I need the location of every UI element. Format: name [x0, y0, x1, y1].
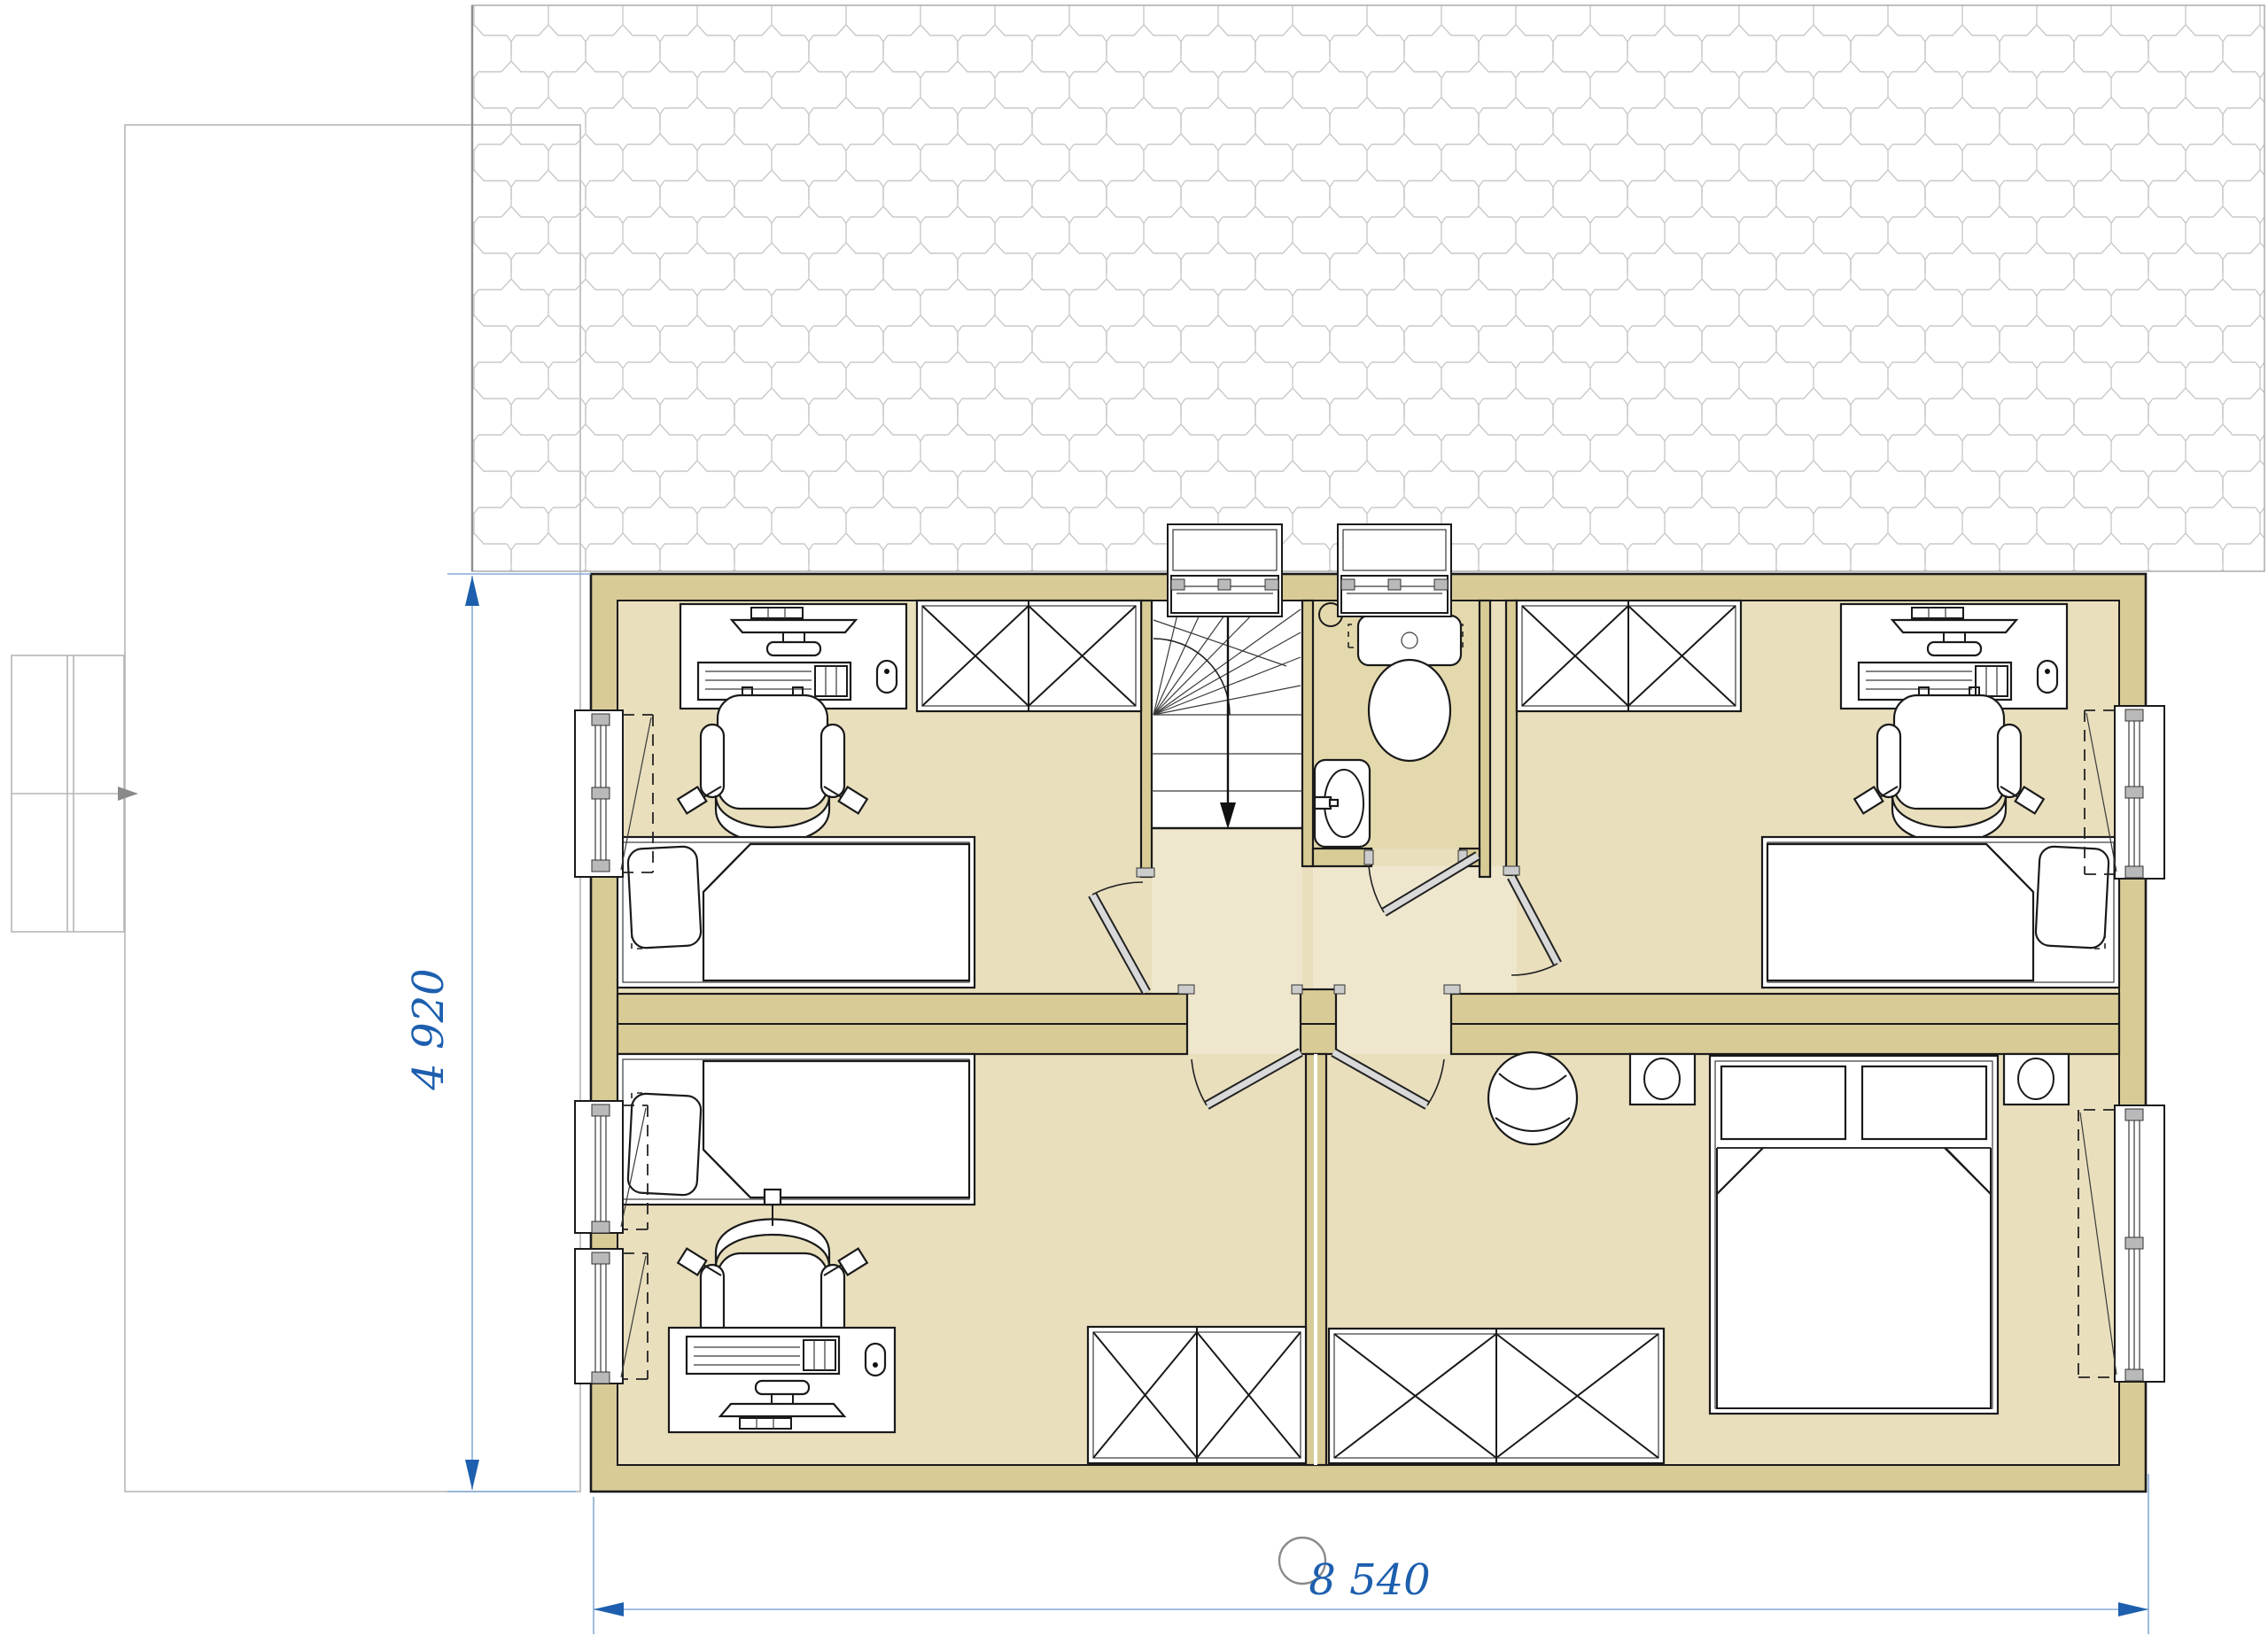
wardrobe — [1517, 601, 1741, 711]
single-bed — [617, 1054, 975, 1205]
wardrobe — [1329, 1329, 1664, 1463]
computer-desk — [1841, 604, 2067, 709]
pillow — [1721, 1066, 1845, 1139]
lower-partition-wall — [1306, 1054, 1326, 1465]
wardrobe — [1088, 1327, 1306, 1463]
entry-porch-outline — [12, 655, 138, 932]
wardrobe — [917, 601, 1141, 711]
floor-plan-drawing: 4 920 8 540 — [0, 0, 2268, 1651]
stairwell-east-wall — [1302, 601, 1313, 866]
roof-shingle-hatch — [472, 5, 2264, 571]
nightstand-left — [1630, 1054, 1695, 1105]
single-bed — [1762, 837, 2119, 988]
floor-plan-page: 4 920 8 540 — [0, 0, 2268, 1651]
roof-window-stairs — [1168, 524, 1282, 616]
entry-arrow-icon — [118, 787, 138, 801]
pillow — [1862, 1066, 1986, 1139]
single-bed — [617, 837, 975, 988]
bathroom-east-wall — [1480, 601, 1490, 877]
roof-window-bathroom — [1338, 524, 1451, 616]
dimension-horizontal: 8 540 — [594, 1474, 2148, 1634]
computer-desk — [669, 1328, 895, 1432]
nightstand-right — [2004, 1054, 2069, 1105]
stairwell-west-wall — [1141, 601, 1152, 877]
dimension-vertical: 4 920 — [404, 574, 591, 1492]
dimension-depth-label: 4 920 — [404, 968, 454, 1090]
double-bed — [1710, 1056, 1998, 1414]
bedroom-tr-west-wall — [1506, 601, 1517, 875]
washbasin-icon — [1315, 760, 1370, 847]
round-armchair — [1488, 1052, 1577, 1144]
bathroom-south-wall — [1313, 849, 1371, 866]
dimension-width-label: 8 540 — [1309, 1555, 1430, 1605]
